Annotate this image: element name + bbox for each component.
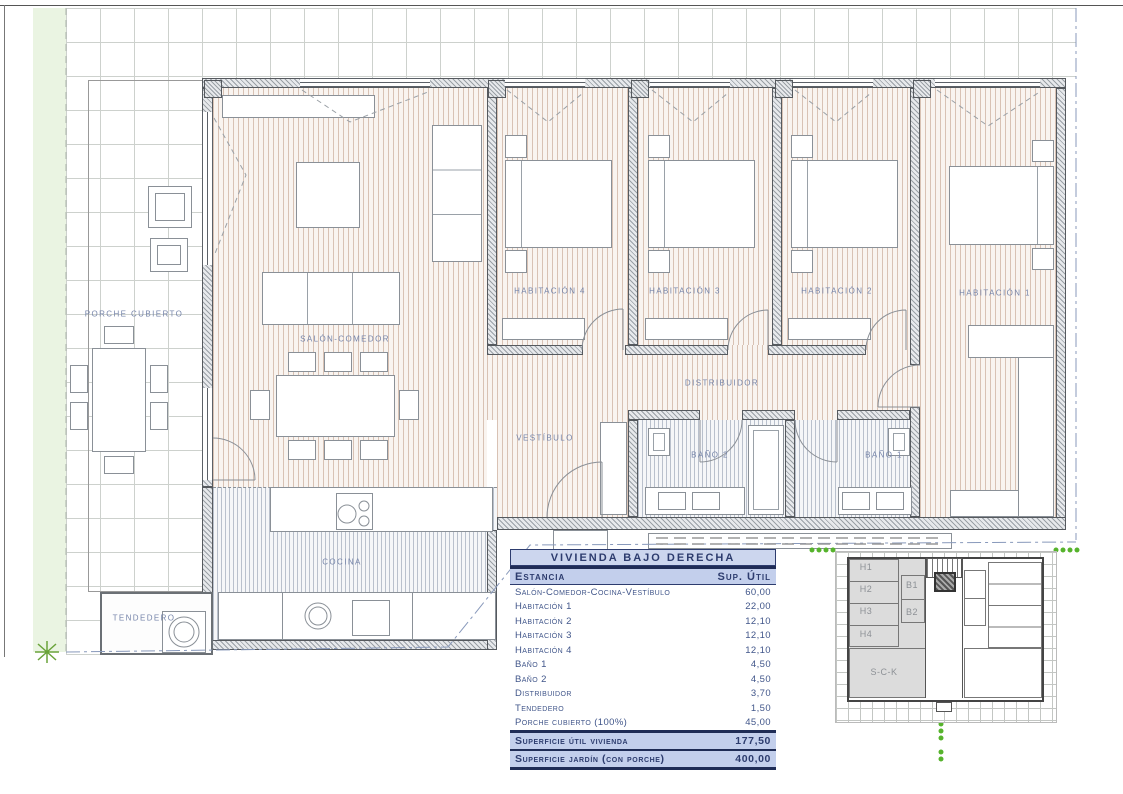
sofa-right [432,125,482,262]
planter [148,186,192,228]
dining-table [276,375,395,437]
key-room-right-baths [964,570,986,626]
window-h2 [793,78,873,87]
label-porche: PORCHE CUBIERTO [85,310,184,319]
window-h4 [505,78,585,87]
row-name: Habitación 4 [515,645,572,656]
table-row: Habitación 312,10 [510,629,776,644]
chair [250,390,270,420]
key-label-b1: B1 [906,580,918,590]
table-total-vivienda: Superficie útil vivienda177,50 [510,733,776,749]
row-name: Habitación 3 [515,630,572,641]
table-row: Baño 14,50 [510,658,776,673]
wall-bedrooms-c [768,345,866,355]
bed-h1 [949,166,1054,245]
wall-bedrooms-a [487,345,583,355]
wall-bedrooms-b [625,345,728,355]
row-name: Habitación 2 [515,616,572,627]
row-name: Habitación 1 [515,601,572,612]
chair [288,440,316,460]
key-entrance-stub [936,702,952,712]
frame-top-line [0,5,1123,6]
key-plan: H1 H2 H3 H4 B1 B2 S-C-K [808,545,1098,765]
row-value: 60,00 [745,587,771,598]
key-elevator [934,572,956,592]
key-label-b2: B2 [906,607,918,617]
closet-vestibulo [600,422,627,515]
surface-table: VIVIENDA BAJO DERECHA Estancia Sup. Útil… [510,549,776,770]
chair [324,440,352,460]
row-value: 22,00 [745,601,771,612]
dresser [645,318,728,340]
chair [150,402,168,430]
table-row: Distribuidor3,70 [510,687,776,702]
nightstand [505,135,527,158]
wall-h2-h1 [910,88,920,365]
total-name: Superficie útil vivienda [515,735,628,747]
wall-banos-c [837,410,910,420]
wall-banos-a [628,410,700,420]
garden-tiles-top [66,8,1076,78]
nightstand [1032,140,1054,162]
key-room-h-column [849,559,899,647]
table-row: Habitación 122,00 [510,600,776,615]
window-h3 [650,78,730,87]
porch-table [92,348,146,452]
wall-bottom-cocina [202,640,497,650]
table-row: Salón-Comedor-Cocina-Vestíbulo60,00 [510,585,776,600]
wall-bottom-main [497,517,1066,530]
column [204,80,222,98]
label-habitacion2: HABITACIÓN 2 [801,287,873,296]
label-vestibulo: VESTÍBULO [516,434,574,443]
wardrobe-h1 [968,325,1054,358]
dresser [788,318,871,340]
label-habitacion3: HABITACIÓN 3 [649,287,721,296]
vanity-sink [842,492,870,510]
row-name: Distribuidor [515,688,572,699]
table-row: Habitación 212,10 [510,614,776,629]
nightstand [648,250,670,273]
key-label-sck: S-C-K [871,667,898,677]
sideboard [222,95,375,118]
row-value: 1,50 [751,703,771,714]
row-value: 12,10 [745,645,771,656]
table-divider [510,767,776,770]
row-value: 12,10 [745,616,771,627]
frame-left-line [4,5,5,657]
table-title: VIVIENDA BAJO DERECHA [510,549,776,566]
counter-divider [412,593,413,639]
row-value: 3,70 [751,688,771,699]
door-salon-porch [202,388,213,480]
cooktop [336,493,373,530]
label-cocina: COCINA [322,558,362,567]
bed-h3 [648,160,755,248]
vanity-sink [692,492,720,510]
dresser [502,318,585,340]
chair [324,352,352,372]
chair [288,352,316,372]
chair [70,365,88,393]
wall-banos-b [742,410,795,420]
nightstand [791,250,813,273]
table-header: Estancia Sup. Útil [510,569,776,585]
row-name: Baño 2 [515,674,547,685]
sofa-bottom [262,272,400,325]
table-row: Porche cubierto (100%)45,00 [510,716,776,731]
chair [399,390,419,420]
window-salon-top [300,78,430,87]
row-name: Salón-Comedor-Cocina-Vestíbulo [515,587,670,598]
chair [70,402,88,430]
col-sup-util: Sup. Útil [717,571,771,583]
label-habitacion4: HABITACIÓN 4 [514,287,586,296]
row-value: 4,50 [751,659,771,670]
bed-h2 [791,160,898,248]
nightstand [505,250,527,273]
window-salon-left [202,112,213,265]
row-value: 45,00 [745,717,771,728]
label-bano2: BAÑO 2 [691,451,729,460]
total-value: 400,00 [735,753,771,765]
label-distribuidor: DISTRIBUIDOR [685,379,759,388]
key-label-h2: H2 [860,584,873,594]
row-value: 4,50 [751,674,771,685]
wall-banos-mid [785,420,795,517]
row-name: Baño 1 [515,659,547,670]
column [775,80,793,98]
nightstand [791,135,813,158]
label-bano1: BAÑO 1 [865,451,903,460]
key-corridor-wall [962,559,963,698]
toilet [648,428,670,456]
floor-plan-sheet: PORCHE CUBIERTO SALÓN-COMEDOR COCINA VES… [0,0,1123,794]
chair [150,365,168,393]
key-room-right-column [988,562,1042,648]
table-row: Baño 24,50 [510,672,776,687]
row-name: Tendedero [515,703,564,714]
wall-h4-h3 [628,88,638,345]
wall-bano2-left [628,420,638,517]
wardrobe-h1 [950,490,1019,517]
key-label-h4: H4 [860,629,873,639]
coffee-table [296,162,360,228]
window-h1 [935,78,1040,87]
wall-right [1056,88,1066,530]
column [631,80,649,98]
table-row: Tendedero1,50 [510,701,776,716]
chair [104,326,134,344]
shower [748,425,784,515]
counter-divider [282,593,283,639]
row-name: Porche cubierto (100%) [515,717,627,728]
row-value: 12,10 [745,630,771,641]
oven [352,600,390,636]
planter [150,238,188,272]
column [488,80,506,98]
key-room-right-big [964,648,1042,698]
vanity-sink [658,492,686,510]
chair [104,456,134,474]
kitchen-island [270,487,493,532]
key-corridor-wall [925,559,926,698]
col-estancia: Estancia [515,571,565,583]
column [913,80,931,98]
label-salon: SALÓN-COMEDOR [300,335,390,344]
wardrobe-h1 [1018,357,1054,517]
chair [360,352,388,372]
wall-salon-h4 [487,88,497,345]
total-value: 177,50 [735,735,771,747]
wall-h3-h2 [772,88,782,345]
chair [360,440,388,460]
table-row: Habitación 412,10 [510,643,776,658]
label-habitacion1: HABITACIÓN 1 [959,289,1031,298]
vanity-sink [876,492,904,510]
key-label-h3: H3 [860,606,873,616]
bed-h4 [505,160,612,248]
key-label-h1: H1 [860,562,873,572]
total-name: Superficie jardín (con porche) [515,753,665,765]
nightstand [1032,248,1054,270]
table-total-jardin: Superficie jardín (con porche)400,00 [510,751,776,767]
label-tendedero: TENDEDERO [113,614,176,623]
nightstand [648,135,670,158]
garden-hedge-strip [33,8,66,652]
